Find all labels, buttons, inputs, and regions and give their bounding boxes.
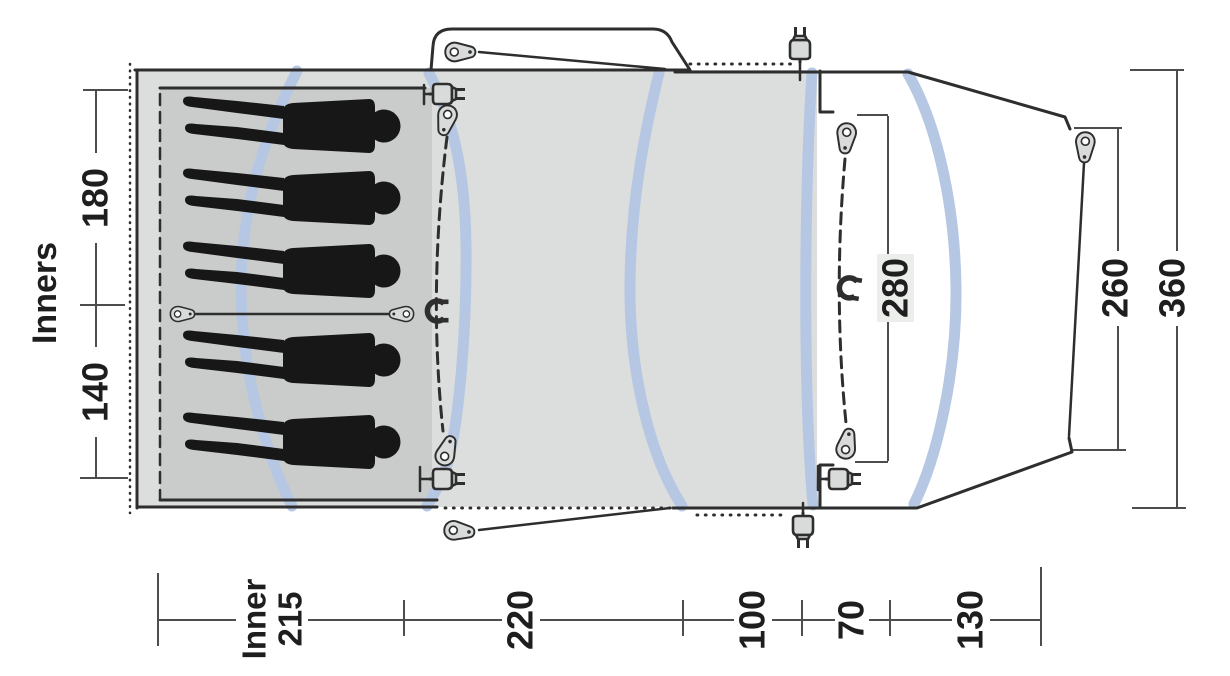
dimension-label-70: 70 bbox=[831, 600, 872, 640]
dimension-label-280: 280 bbox=[875, 258, 916, 318]
inners-title-label: Inners bbox=[26, 242, 64, 344]
guy-peg-icon bbox=[835, 122, 857, 154]
dimension-label-inner-word: Inner bbox=[236, 579, 273, 660]
dimension-label-220: 220 bbox=[500, 590, 541, 650]
guy-peg-icon bbox=[835, 427, 860, 460]
dimension-label-360: 360 bbox=[1152, 258, 1193, 318]
tent-floorplan-diagram: 180 140 Inners 280 260 360 Inner 215 220… bbox=[0, 0, 1230, 671]
dimension-label-260: 260 bbox=[1095, 258, 1136, 318]
magnet-tieback-icon bbox=[838, 275, 863, 301]
cable-entry-icon bbox=[790, 27, 810, 63]
front-wall-top-stub bbox=[820, 71, 833, 112]
rear-guy-line bbox=[479, 52, 665, 69]
dimension-label-215: 215 bbox=[272, 591, 309, 646]
dimension-label-140: 140 bbox=[75, 362, 116, 422]
cable-entry-icon bbox=[825, 469, 861, 489]
guy-peg-icon bbox=[443, 520, 475, 542]
cable-entry-icon bbox=[793, 512, 813, 548]
front-guy-line bbox=[479, 508, 670, 530]
dimension-label-130: 130 bbox=[950, 590, 991, 650]
guy-peg-icon bbox=[445, 43, 475, 62]
dimension-label-180: 180 bbox=[75, 168, 116, 228]
dimension-label-100: 100 bbox=[732, 590, 773, 650]
front-right-edge bbox=[1069, 163, 1084, 436]
guy-peg-icon bbox=[1075, 132, 1095, 163]
floorplan-svg: 180 140 Inners 280 260 360 Inner 215 220… bbox=[0, 0, 1230, 671]
